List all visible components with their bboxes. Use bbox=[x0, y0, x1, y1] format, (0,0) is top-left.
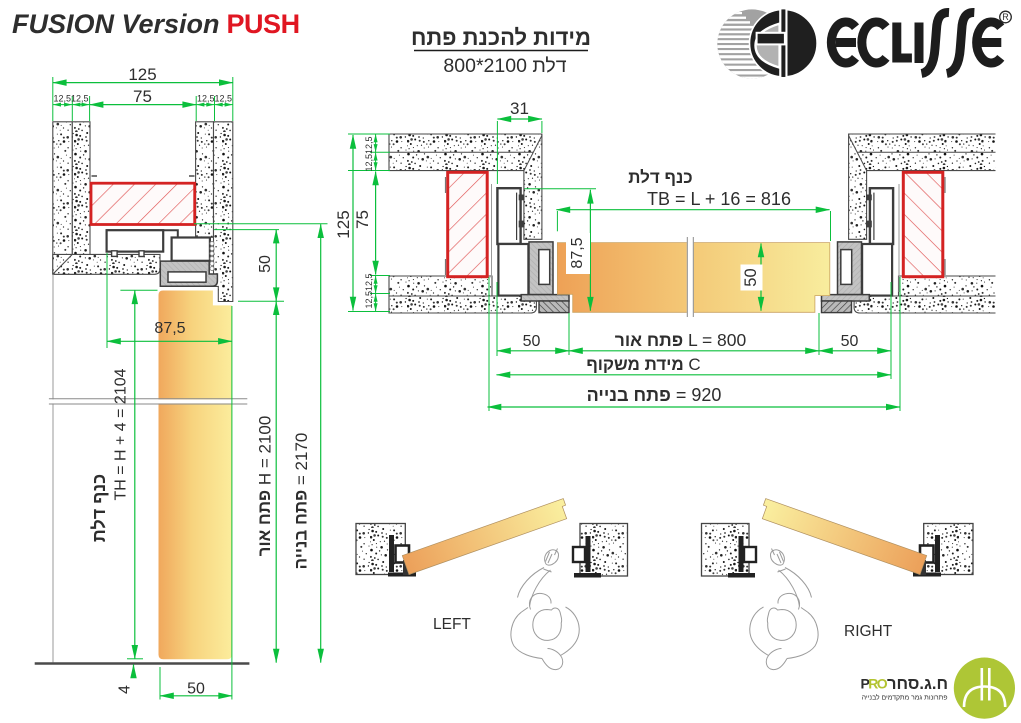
svg-text:125: 125 bbox=[128, 65, 156, 84]
svg-text:כנף דלת: כנף דלת bbox=[628, 168, 692, 187]
svg-text:מידות להכנת פתח: מידות להכנת פתח bbox=[411, 25, 591, 50]
svg-text:125: 125 bbox=[334, 210, 353, 238]
svg-text:פתרונות גמר מתקדמים לבנייה: פתרונות גמר מתקדמים לבנייה bbox=[862, 694, 948, 702]
svg-text:פתח אור H = 2100: פתח אור H = 2100 bbox=[255, 416, 274, 557]
svg-text:75: 75 bbox=[133, 87, 152, 106]
svg-text:12,512,5: 12,512,5 bbox=[197, 94, 232, 104]
svg-text:12,512,5: 12,512,5 bbox=[364, 136, 374, 171]
svg-text:31: 31 bbox=[510, 99, 529, 118]
svg-text:פתח בנייה‎ = 2170: פתח בנייה‎ = 2170 bbox=[292, 433, 311, 570]
svg-text:50: 50 bbox=[257, 255, 274, 273]
svg-text:4: 4 bbox=[117, 685, 134, 694]
svg-text:FUSION Version PUSH: FUSION Version PUSH bbox=[12, 9, 300, 39]
svg-text:12,512,5: 12,512,5 bbox=[53, 94, 88, 104]
svg-text:800*2100 דלת: 800*2100 דלת bbox=[443, 55, 566, 77]
svg-text:כנף דלת: כנף דלת bbox=[89, 474, 109, 542]
svg-text:ח.ג.סחר: ח.ג.סחר bbox=[887, 675, 948, 693]
svg-text:RIGHT: RIGHT bbox=[844, 623, 893, 640]
svg-text:50: 50 bbox=[523, 333, 541, 350]
svg-text:50: 50 bbox=[187, 681, 205, 698]
svg-text:LEFT: LEFT bbox=[433, 616, 471, 633]
svg-text:TH = H + 4 = 2104: TH = H + 4 = 2104 bbox=[113, 368, 130, 500]
svg-text:PRO: PRO bbox=[861, 676, 888, 692]
svg-text:פתח אור L = 800: פתח אור L = 800 bbox=[615, 330, 747, 350]
svg-text:50: 50 bbox=[742, 268, 760, 286]
svg-text:50: 50 bbox=[841, 333, 859, 350]
svg-text:87,5: 87,5 bbox=[154, 320, 185, 337]
svg-text:R: R bbox=[1002, 12, 1009, 22]
svg-text:מידת משקוף C: מידת משקוף C bbox=[586, 355, 700, 374]
svg-text:12,512,5: 12,512,5 bbox=[364, 273, 374, 308]
svg-text:75: 75 bbox=[353, 210, 372, 229]
svg-text:TB = L + 16 = 816: TB = L + 16 = 816 bbox=[647, 189, 791, 209]
svg-text:פתח בנייה‎ = 920: פתח בנייה‎ = 920 bbox=[587, 385, 722, 405]
svg-text:87,5: 87,5 bbox=[569, 237, 586, 268]
